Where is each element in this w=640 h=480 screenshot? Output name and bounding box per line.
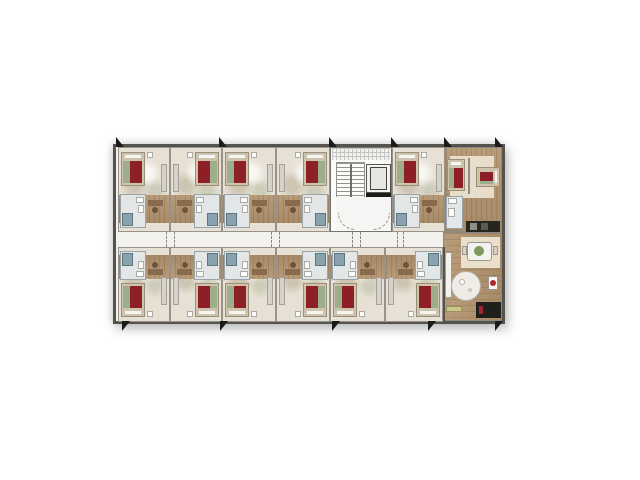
wardrobe (173, 277, 179, 305)
bathroom (224, 251, 250, 280)
suite-bed-2 (476, 167, 500, 187)
lounge-bench (446, 306, 462, 312)
guest-bed (333, 283, 357, 317)
bathroom (120, 251, 146, 280)
bedside-table (187, 311, 193, 317)
door-swing-dash (403, 232, 404, 247)
wall-marker (329, 137, 337, 147)
bed-red-blanket (198, 161, 210, 183)
guest-bed (121, 152, 145, 186)
guestroom-top-3 (222, 147, 276, 232)
toilet (242, 261, 248, 269)
shower (315, 213, 326, 226)
bedside-table (295, 311, 301, 317)
desk (148, 200, 163, 206)
guestroom-bottom-3 (222, 247, 276, 322)
bed-red-blanket (342, 286, 354, 308)
bedside-table (251, 152, 257, 158)
bed-green-throw (480, 181, 493, 184)
sink (417, 271, 425, 277)
wall-marker (220, 321, 228, 331)
guestroom-top-2 (170, 147, 222, 232)
guestroom-bottom-2-furniture (171, 248, 221, 321)
guestroom-top-1 (118, 147, 170, 232)
guestroom-bottom-5-furniture (331, 248, 384, 321)
bed-green-throw (123, 286, 130, 308)
bed-green-throw (227, 161, 234, 183)
desk-chair (182, 262, 188, 268)
round-table (451, 271, 481, 301)
guestroom-bottom-4-furniture (277, 248, 329, 321)
bathroom (302, 194, 328, 227)
wardrobe (388, 277, 394, 305)
shower (334, 253, 345, 266)
floor-plan-canvas (0, 0, 640, 480)
bed-pillow (306, 154, 324, 159)
guest-bed (195, 283, 219, 317)
bed-pillow (450, 161, 462, 166)
bed-red-blanket (454, 168, 463, 188)
door-swing-dash (166, 232, 167, 247)
guestroom-top-1-furniture (119, 148, 169, 231)
round-table-item-1 (459, 279, 465, 285)
desk (285, 200, 300, 206)
suite-bath-toilet (448, 208, 455, 217)
toilet (138, 261, 144, 269)
wall-marker (428, 321, 436, 331)
wardrobe (267, 164, 273, 192)
wardrobe (161, 164, 167, 192)
sink (348, 271, 356, 277)
wardrobe (173, 164, 179, 192)
door-swing-dash (360, 232, 361, 247)
desk (422, 200, 437, 206)
round-table-item-2 (468, 288, 472, 292)
wall-marker (116, 137, 124, 147)
bed-pillow (198, 310, 216, 315)
shower (207, 213, 218, 226)
desk-chair (403, 262, 409, 268)
bed-red-blanket (234, 161, 246, 183)
bed-pillow (124, 154, 142, 159)
guest-bed (303, 152, 327, 186)
desk-chair (364, 262, 370, 268)
sink (240, 271, 248, 277)
desk (252, 200, 267, 206)
door-swing-dash (397, 232, 398, 247)
shower (207, 253, 218, 266)
sink (240, 197, 248, 203)
bed-pillow (419, 310, 437, 315)
guest-bed (195, 152, 219, 186)
desk-chair (152, 262, 158, 268)
desk-chair (290, 262, 296, 268)
shower (428, 253, 439, 266)
desk (148, 269, 163, 275)
bed-red-blanket (306, 286, 318, 308)
side-table-lamp (490, 280, 496, 286)
bed-pillow (494, 170, 498, 184)
wall-marker (391, 137, 399, 147)
door-swing-dash (174, 232, 175, 247)
toilet (304, 261, 310, 269)
bed-green-throw (123, 161, 130, 183)
guestroom-bottom-2 (170, 247, 222, 322)
kitchen-appliance-1 (470, 223, 477, 230)
desk-chair (256, 262, 262, 268)
bed-pillow (124, 310, 142, 315)
dining-plant (474, 246, 484, 256)
toilet (138, 205, 144, 213)
bathroom (194, 194, 220, 227)
wall-marker (122, 321, 130, 331)
suite-partition-wall (468, 158, 470, 194)
wardrobe (161, 277, 167, 305)
sink (136, 197, 144, 203)
bed-red-blanket (130, 286, 142, 308)
toilet (196, 205, 202, 213)
guestroom-top-4 (276, 147, 330, 232)
bed-green-throw (318, 286, 325, 308)
door-swing-dash (279, 232, 280, 247)
sink (304, 271, 312, 277)
bathroom (224, 194, 250, 227)
desk (398, 269, 413, 275)
bed-green-throw (210, 161, 217, 183)
bed-green-throw (335, 286, 342, 308)
wardrobe (376, 277, 382, 305)
bedside-table (408, 311, 414, 317)
bed-pillow (398, 154, 416, 159)
shower (122, 213, 133, 226)
guestroom-top-2-furniture (171, 148, 221, 231)
media-desk-accent (479, 306, 483, 314)
bathroom (194, 251, 220, 280)
toilet (350, 261, 356, 269)
bathroom (394, 194, 420, 227)
sink (196, 271, 204, 277)
dining-chair-1 (462, 246, 467, 255)
bedside-table (251, 311, 257, 317)
wall-marker (495, 321, 503, 331)
shower (226, 213, 237, 226)
guest-bed (225, 283, 249, 317)
guestroom-bottom-4 (276, 247, 330, 322)
guestroom-bottom-6-furniture (386, 248, 442, 321)
guestroom-bottom-1-furniture (119, 248, 169, 321)
guestroom-bottom-3-furniture (223, 248, 275, 321)
bedside-table (421, 152, 427, 158)
bed-red-blanket (404, 161, 416, 183)
guest-bed (416, 283, 440, 317)
sink (304, 197, 312, 203)
desk (252, 269, 267, 275)
bedside-table (359, 311, 365, 317)
guest-bed (225, 152, 249, 186)
wall-marker (444, 137, 452, 147)
bedside-table (147, 311, 153, 317)
door-swing-dash (352, 232, 353, 247)
desk (360, 269, 375, 275)
bed-red-blanket (306, 161, 318, 183)
bed-pillow (228, 154, 246, 159)
shower (396, 213, 407, 226)
shower (315, 253, 326, 266)
suite-bath-sink (448, 198, 457, 204)
desk (177, 269, 192, 275)
bed-red-blanket (419, 286, 431, 308)
sink (410, 197, 418, 203)
bed-green-throw (397, 161, 404, 183)
floor-plan-layer (0, 0, 640, 480)
elevator-car (370, 167, 387, 190)
bed-pillow (198, 154, 216, 159)
wall-marker (495, 137, 503, 147)
bedside-table (187, 152, 193, 158)
sink (196, 197, 204, 203)
guestroom-top-5 (392, 147, 445, 232)
toilet (242, 205, 248, 213)
shower (122, 253, 133, 266)
toilet (417, 261, 423, 269)
bed-green-throw (431, 286, 438, 308)
toilet (412, 205, 418, 213)
wardrobe (267, 277, 273, 305)
bedside-table (295, 152, 301, 158)
bed-pillow (306, 310, 324, 315)
bed-pillow (336, 310, 354, 315)
bed-green-throw (318, 161, 325, 183)
bed-green-throw (227, 286, 234, 308)
wardrobe (279, 277, 285, 305)
bathroom (332, 251, 358, 280)
suite-bed-1 (447, 159, 465, 191)
guestroom-bottom-6 (385, 247, 443, 322)
bathroom (415, 251, 441, 280)
bed-red-blanket (198, 286, 210, 308)
shower (226, 253, 237, 266)
guestroom-bottom-1 (118, 247, 170, 322)
wardrobe (279, 164, 285, 192)
bathroom (302, 251, 328, 280)
guestroom-top-3-furniture (223, 148, 275, 231)
stair-window-grid (332, 148, 390, 160)
guestroom-top-4-furniture (277, 148, 329, 231)
toilet (196, 261, 202, 269)
guest-bed (303, 283, 327, 317)
bedside-table (147, 152, 153, 158)
wardrobe (436, 164, 442, 192)
bed-green-throw (210, 286, 217, 308)
desk (177, 200, 192, 206)
desk (285, 269, 300, 275)
wall-marker (219, 137, 227, 147)
wall-marker (332, 321, 340, 331)
toilet (304, 205, 310, 213)
guestroom-bottom-5 (330, 247, 385, 322)
bed-pillow (228, 310, 246, 315)
bathroom (120, 194, 146, 227)
guestroom-top-5-furniture (393, 148, 444, 231)
guest-bed (395, 152, 419, 186)
dining-chair-2 (493, 246, 498, 255)
kitchen-appliance-2 (481, 223, 488, 230)
bed-red-blanket (234, 286, 246, 308)
sink (136, 271, 144, 277)
guest-bed (121, 283, 145, 317)
door-swing-dash (271, 232, 272, 247)
bed-red-blanket (130, 161, 142, 183)
